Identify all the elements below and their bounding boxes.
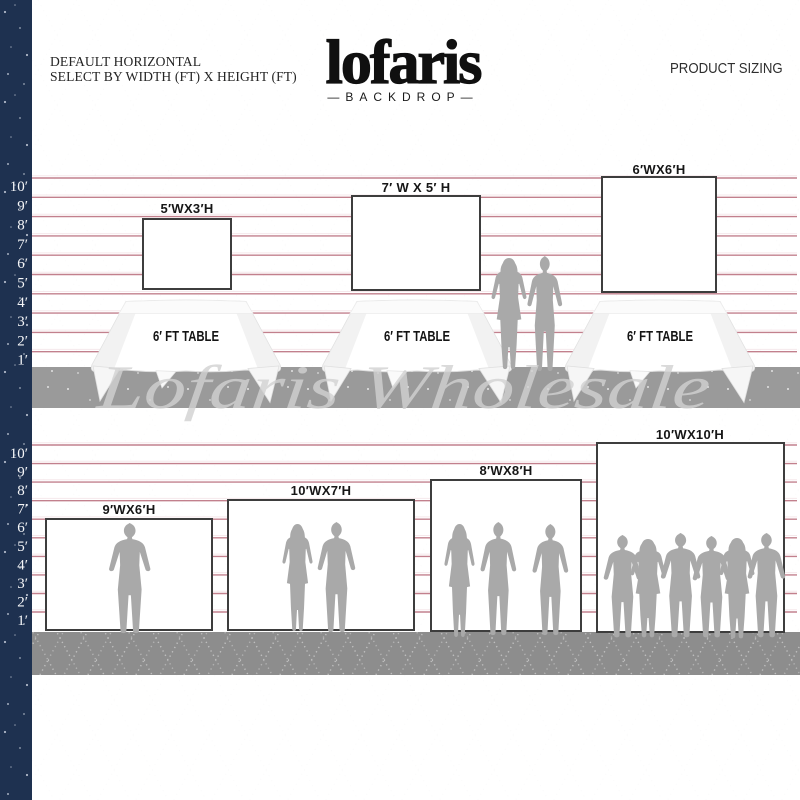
svg-text:2′: 2′ xyxy=(17,333,28,349)
svg-text:5′: 5′ xyxy=(17,539,28,555)
svg-text:6′WX6′H: 6′WX6′H xyxy=(632,162,685,177)
svg-text:6′ FT TABLE: 6′ FT TABLE xyxy=(627,328,693,345)
svg-text:7′: 7′ xyxy=(17,237,28,253)
svg-text:7′ W X 5′ H: 7′ W X 5′ H xyxy=(382,180,451,195)
svg-text:Lofaris Wholesale: Lofaris Wholesale xyxy=(93,354,713,422)
svg-text:10′WX10′H: 10′WX10′H xyxy=(656,427,724,442)
svg-text:6′ FT TABLE: 6′ FT TABLE xyxy=(384,328,450,345)
svg-text:6′ FT TABLE: 6′ FT TABLE xyxy=(153,328,219,345)
svg-text:8′: 8′ xyxy=(17,483,28,499)
svg-text:10′WX7′H: 10′WX7′H xyxy=(291,483,352,498)
svg-text:1′: 1′ xyxy=(17,353,28,369)
svg-text:7′: 7′ xyxy=(17,502,28,518)
svg-text:5′WX3′H: 5′WX3′H xyxy=(160,201,213,216)
svg-text:4′: 4′ xyxy=(17,295,28,311)
svg-text:8′WX8′H: 8′WX8′H xyxy=(479,463,532,478)
svg-text:9′: 9′ xyxy=(17,198,28,214)
svg-text:2′: 2′ xyxy=(17,595,28,611)
svg-text:3′: 3′ xyxy=(17,314,28,330)
svg-text:4′: 4′ xyxy=(17,557,28,573)
svg-text:9′: 9′ xyxy=(17,465,28,481)
svg-text:1′: 1′ xyxy=(17,613,28,629)
svg-text:10′: 10′ xyxy=(10,179,28,195)
svg-text:6′: 6′ xyxy=(17,256,28,272)
svg-text:9′WX6′H: 9′WX6′H xyxy=(102,502,155,517)
svg-text:3′: 3′ xyxy=(17,576,28,592)
svg-text:8′: 8′ xyxy=(17,218,28,234)
svg-text:10′: 10′ xyxy=(10,446,28,462)
svg-text:5′: 5′ xyxy=(17,276,28,292)
svg-text:6′: 6′ xyxy=(17,520,28,536)
